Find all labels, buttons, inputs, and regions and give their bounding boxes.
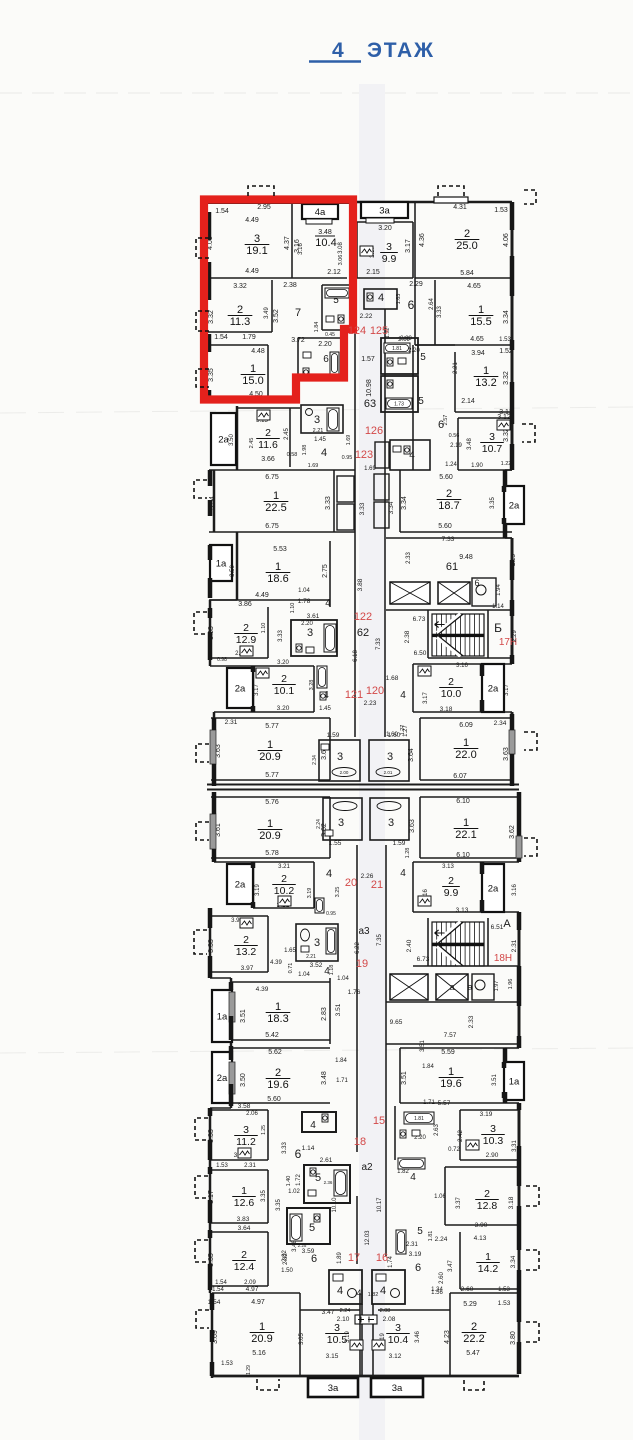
svg-text:1.53: 1.53 bbox=[221, 1361, 233, 1367]
svg-text:А: А bbox=[503, 918, 511, 930]
svg-text:1.71: 1.71 bbox=[336, 1078, 348, 1084]
svg-text:7.33: 7.33 bbox=[376, 638, 382, 650]
svg-text:3.19: 3.19 bbox=[480, 1111, 493, 1118]
svg-text:126: 126 bbox=[365, 425, 383, 437]
svg-text:2: 2 bbox=[281, 873, 287, 885]
svg-text:6.75: 6.75 bbox=[265, 523, 279, 530]
svg-text:2: 2 bbox=[484, 1188, 490, 1200]
svg-text:3.06: 3.06 bbox=[338, 255, 344, 266]
svg-text:1a: 1a bbox=[217, 1012, 228, 1023]
svg-text:1.29: 1.29 bbox=[246, 1365, 252, 1375]
svg-text:1.06: 1.06 bbox=[434, 1194, 446, 1200]
svg-text:18.6: 18.6 bbox=[267, 573, 288, 585]
svg-text:1: 1 bbox=[485, 1251, 491, 1263]
svg-text:3a: 3a bbox=[392, 1383, 403, 1394]
svg-text:1.02: 1.02 bbox=[288, 1189, 300, 1195]
svg-text:3.16: 3.16 bbox=[298, 243, 304, 255]
svg-text:3.48: 3.48 bbox=[321, 1071, 328, 1085]
svg-text:20.9: 20.9 bbox=[259, 830, 280, 842]
svg-text:0.72: 0.72 bbox=[448, 1147, 460, 1153]
svg-text:3.16: 3.16 bbox=[456, 663, 468, 669]
svg-text:9.9: 9.9 bbox=[382, 253, 397, 265]
svg-text:3.34: 3.34 bbox=[401, 496, 408, 510]
svg-text:6: 6 bbox=[323, 354, 329, 365]
svg-text:1.59: 1.59 bbox=[393, 840, 406, 847]
svg-text:3.05: 3.05 bbox=[299, 1333, 305, 1345]
svg-text:6: 6 bbox=[415, 1262, 421, 1274]
svg-text:3: 3 bbox=[489, 431, 495, 443]
svg-text:1.74: 1.74 bbox=[388, 1256, 394, 1268]
svg-text:16: 16 bbox=[376, 1252, 388, 1264]
svg-text:10.4: 10.4 bbox=[315, 237, 336, 249]
svg-text:3.35: 3.35 bbox=[276, 1199, 282, 1211]
svg-text:3: 3 bbox=[307, 627, 313, 639]
svg-text:2.20: 2.20 bbox=[301, 621, 313, 627]
svg-text:1.81: 1.81 bbox=[392, 346, 402, 352]
svg-text:1: 1 bbox=[463, 817, 469, 829]
svg-text:3.88: 3.88 bbox=[357, 578, 364, 591]
svg-text:2: 2 bbox=[471, 1321, 477, 1333]
svg-text:1.94: 1.94 bbox=[496, 584, 502, 596]
svg-text:3.20: 3.20 bbox=[277, 705, 290, 712]
svg-text:21: 21 bbox=[371, 879, 383, 891]
svg-text:3a: 3a bbox=[328, 1383, 339, 1394]
svg-text:3.18: 3.18 bbox=[440, 706, 453, 713]
svg-text:3.13: 3.13 bbox=[456, 907, 469, 914]
svg-text:18.3: 18.3 bbox=[267, 1013, 288, 1025]
svg-text:3.17: 3.17 bbox=[405, 239, 412, 253]
svg-text:20.9: 20.9 bbox=[251, 1333, 272, 1345]
svg-text:6.10: 6.10 bbox=[456, 852, 470, 859]
svg-text:125: 125 bbox=[370, 325, 388, 337]
svg-text:ЭТАЖ: ЭТАЖ bbox=[367, 39, 435, 62]
svg-text:1.10: 1.10 bbox=[290, 603, 296, 614]
svg-text:1.45: 1.45 bbox=[319, 706, 331, 712]
svg-text:2.24: 2.24 bbox=[340, 1308, 351, 1314]
svg-text:3: 3 bbox=[387, 751, 393, 763]
svg-text:2: 2 bbox=[243, 622, 249, 634]
svg-text:2: 2 bbox=[237, 304, 243, 316]
svg-text:а: а bbox=[449, 982, 454, 992]
svg-text:62: 62 bbox=[357, 627, 369, 639]
svg-text:3.28: 3.28 bbox=[309, 680, 315, 691]
svg-text:9.48: 9.48 bbox=[459, 554, 473, 561]
svg-text:2.01: 2.01 bbox=[384, 770, 393, 775]
svg-text:3.51: 3.51 bbox=[240, 1009, 247, 1023]
svg-text:15: 15 bbox=[373, 1115, 385, 1127]
svg-text:5: 5 bbox=[309, 1222, 315, 1234]
svg-text:5.78: 5.78 bbox=[265, 850, 279, 857]
svg-text:1.90: 1.90 bbox=[471, 463, 483, 469]
svg-text:1.14: 1.14 bbox=[302, 1145, 315, 1152]
svg-text:2.60: 2.60 bbox=[439, 1272, 445, 1284]
svg-text:1: 1 bbox=[241, 1185, 247, 1197]
svg-text:1.28: 1.28 bbox=[405, 848, 411, 859]
svg-text:1.82: 1.82 bbox=[368, 1292, 379, 1298]
svg-text:5.62: 5.62 bbox=[268, 1049, 282, 1056]
svg-text:11.3: 11.3 bbox=[230, 316, 251, 328]
svg-text:0.58: 0.58 bbox=[287, 452, 298, 458]
svg-text:2: 2 bbox=[281, 673, 287, 685]
svg-text:6: 6 bbox=[295, 1147, 302, 1161]
svg-text:3.50: 3.50 bbox=[240, 1073, 247, 1087]
svg-text:1: 1 bbox=[463, 737, 469, 749]
svg-text:3.64: 3.64 bbox=[238, 1225, 251, 1232]
svg-text:6.10: 6.10 bbox=[456, 798, 470, 805]
svg-text:4: 4 bbox=[410, 1172, 416, 1183]
svg-text:2.29: 2.29 bbox=[512, 630, 518, 642]
svg-text:4.97: 4.97 bbox=[251, 1299, 265, 1306]
svg-text:4a: 4a bbox=[315, 207, 326, 218]
svg-text:5.84: 5.84 bbox=[460, 270, 474, 277]
svg-text:4.31: 4.31 bbox=[453, 204, 467, 211]
svg-text:3.86: 3.86 bbox=[238, 601, 252, 608]
svg-text:5.76: 5.76 bbox=[265, 799, 279, 806]
svg-text:4: 4 bbox=[356, 1288, 361, 1298]
svg-text:4: 4 bbox=[321, 447, 327, 459]
svg-text:2.22: 2.22 bbox=[360, 313, 373, 320]
svg-text:61: 61 bbox=[446, 561, 458, 573]
svg-text:1.04: 1.04 bbox=[298, 972, 310, 978]
svg-text:2.31: 2.31 bbox=[511, 939, 518, 952]
svg-text:3.52: 3.52 bbox=[310, 962, 323, 969]
svg-text:3.16: 3.16 bbox=[512, 884, 518, 896]
svg-text:3.34: 3.34 bbox=[388, 501, 395, 514]
svg-text:121: 121 bbox=[345, 689, 363, 701]
svg-text:2.40: 2.40 bbox=[406, 939, 413, 952]
svg-text:5: 5 bbox=[418, 396, 424, 407]
svg-text:2a: 2a bbox=[488, 884, 499, 895]
svg-text:3.34: 3.34 bbox=[503, 310, 510, 324]
svg-text:3.64: 3.64 bbox=[408, 748, 415, 762]
svg-text:4: 4 bbox=[378, 292, 384, 304]
svg-text:4.97: 4.97 bbox=[246, 1286, 259, 1293]
svg-text:4.06: 4.06 bbox=[503, 233, 510, 247]
svg-text:2.23: 2.23 bbox=[364, 700, 377, 707]
svg-text:9.9: 9.9 bbox=[444, 887, 459, 899]
svg-text:1.89: 1.89 bbox=[337, 1252, 343, 1264]
svg-text:5.29: 5.29 bbox=[463, 1301, 477, 1308]
svg-text:4.39: 4.39 bbox=[256, 986, 269, 993]
svg-text:6.51: 6.51 bbox=[491, 924, 504, 931]
svg-text:12.4: 12.4 bbox=[234, 1261, 255, 1273]
svg-text:10.10: 10.10 bbox=[332, 1197, 338, 1213]
svg-text:2a: 2a bbox=[509, 501, 520, 512]
svg-text:3.50: 3.50 bbox=[229, 434, 235, 446]
svg-text:3.35: 3.35 bbox=[261, 1190, 267, 1202]
svg-text:3.32: 3.32 bbox=[233, 283, 247, 290]
svg-text:3.52: 3.52 bbox=[273, 309, 280, 323]
svg-text:19.1: 19.1 bbox=[246, 245, 267, 257]
svg-text:3.46: 3.46 bbox=[415, 1331, 421, 1343]
svg-text:1.71: 1.71 bbox=[423, 1100, 435, 1106]
svg-text:20: 20 bbox=[345, 877, 357, 889]
svg-text:1.72: 1.72 bbox=[296, 1174, 302, 1186]
svg-text:10.0: 10.0 bbox=[441, 688, 462, 700]
svg-text:3.50: 3.50 bbox=[230, 565, 236, 577]
svg-text:1.45: 1.45 bbox=[314, 437, 326, 443]
svg-text:4: 4 bbox=[332, 39, 344, 62]
svg-text:2: 2 bbox=[446, 488, 452, 500]
svg-text:123: 123 bbox=[355, 449, 373, 461]
svg-text:1.40: 1.40 bbox=[286, 1176, 292, 1187]
svg-text:4.49: 4.49 bbox=[245, 268, 259, 275]
svg-text:7: 7 bbox=[295, 307, 301, 319]
svg-text:1.24: 1.24 bbox=[445, 462, 457, 468]
svg-text:1.56: 1.56 bbox=[431, 1290, 443, 1296]
svg-text:2: 2 bbox=[243, 934, 249, 946]
svg-text:1a: 1a bbox=[509, 1077, 520, 1088]
svg-text:1.54: 1.54 bbox=[215, 1280, 227, 1286]
svg-text:2a: 2a bbox=[235, 880, 246, 891]
svg-text:3.58: 3.58 bbox=[238, 1103, 251, 1110]
svg-text:1.14: 1.14 bbox=[492, 604, 504, 610]
svg-text:4.48: 4.48 bbox=[251, 348, 265, 355]
svg-text:2.33: 2.33 bbox=[406, 552, 412, 564]
svg-text:3.63: 3.63 bbox=[409, 819, 416, 833]
svg-text:5.77: 5.77 bbox=[265, 723, 279, 730]
svg-text:4.65: 4.65 bbox=[467, 283, 481, 290]
svg-text:5: 5 bbox=[420, 352, 426, 363]
svg-text:2.95: 2.95 bbox=[257, 204, 271, 211]
svg-text:0.45: 0.45 bbox=[325, 332, 335, 338]
svg-text:3.19: 3.19 bbox=[307, 888, 313, 899]
svg-text:2.90: 2.90 bbox=[486, 1152, 499, 1159]
svg-text:13.2: 13.2 bbox=[475, 377, 496, 389]
svg-text:5.77: 5.77 bbox=[265, 772, 279, 779]
svg-text:3.51: 3.51 bbox=[335, 1003, 342, 1016]
svg-text:1: 1 bbox=[275, 1001, 281, 1013]
svg-text:5.59: 5.59 bbox=[441, 1049, 455, 1056]
svg-text:12.9: 12.9 bbox=[236, 634, 257, 646]
svg-text:4.36: 4.36 bbox=[419, 233, 426, 247]
svg-text:2.08: 2.08 bbox=[380, 1308, 391, 1314]
svg-text:2a: 2a bbox=[235, 684, 246, 695]
svg-text:2.42: 2.42 bbox=[458, 1130, 464, 1142]
svg-text:3.33: 3.33 bbox=[278, 630, 284, 642]
svg-text:3.33: 3.33 bbox=[282, 1142, 288, 1154]
svg-text:4: 4 bbox=[400, 868, 406, 879]
svg-text:3.83: 3.83 bbox=[237, 1216, 250, 1223]
svg-text:2.38: 2.38 bbox=[283, 282, 297, 289]
svg-text:2: 2 bbox=[448, 676, 454, 688]
svg-text:3.15: 3.15 bbox=[326, 1353, 339, 1360]
svg-text:1.84: 1.84 bbox=[422, 1064, 434, 1070]
svg-text:2.31: 2.31 bbox=[225, 719, 238, 726]
svg-text:1.98: 1.98 bbox=[302, 445, 308, 456]
svg-text:2: 2 bbox=[265, 427, 271, 439]
svg-text:1.10: 1.10 bbox=[261, 623, 267, 634]
svg-text:4.65: 4.65 bbox=[470, 336, 484, 343]
svg-text:3.33: 3.33 bbox=[437, 306, 443, 318]
svg-text:1.97: 1.97 bbox=[494, 981, 500, 992]
svg-text:10.98: 10.98 bbox=[366, 379, 373, 397]
svg-text:2.64: 2.64 bbox=[429, 298, 435, 310]
svg-text:2.14: 2.14 bbox=[461, 398, 475, 405]
svg-text:1.18: 1.18 bbox=[329, 965, 335, 976]
svg-text:3: 3 bbox=[490, 1123, 496, 1135]
svg-text:3.48: 3.48 bbox=[292, 1240, 298, 1252]
svg-text:1.81: 1.81 bbox=[414, 1116, 424, 1122]
svg-text:1.79: 1.79 bbox=[242, 334, 256, 341]
svg-text:1: 1 bbox=[478, 304, 484, 316]
svg-text:4: 4 bbox=[310, 1120, 316, 1131]
svg-text:6: 6 bbox=[311, 1253, 317, 1265]
svg-text:1.04: 1.04 bbox=[298, 588, 310, 594]
svg-text:6.73: 6.73 bbox=[417, 956, 430, 963]
svg-text:1.53: 1.53 bbox=[216, 1163, 228, 1169]
svg-text:7.35: 7.35 bbox=[377, 934, 383, 946]
svg-text:19.6: 19.6 bbox=[440, 1078, 461, 1090]
svg-text:2.29: 2.29 bbox=[409, 281, 423, 288]
svg-text:7.57: 7.57 bbox=[444, 1032, 457, 1039]
svg-text:3.62: 3.62 bbox=[509, 825, 516, 839]
svg-text:3.80: 3.80 bbox=[510, 1331, 517, 1345]
svg-text:6: 6 bbox=[474, 578, 479, 588]
svg-text:1.53: 1.53 bbox=[498, 1287, 510, 1293]
svg-text:1.53: 1.53 bbox=[498, 1300, 511, 1307]
svg-text:3.13: 3.13 bbox=[442, 864, 454, 870]
svg-text:3.66: 3.66 bbox=[261, 456, 275, 463]
svg-text:3: 3 bbox=[395, 1322, 401, 1334]
svg-text:6: 6 bbox=[408, 298, 415, 312]
svg-text:2.75: 2.75 bbox=[322, 564, 329, 578]
svg-text:2: 2 bbox=[448, 875, 454, 887]
svg-text:4.49: 4.49 bbox=[255, 592, 269, 599]
svg-text:6.50: 6.50 bbox=[414, 650, 427, 657]
svg-text:2.31: 2.31 bbox=[406, 1242, 418, 1248]
svg-text:3.49: 3.49 bbox=[264, 307, 270, 319]
svg-text:19.6: 19.6 bbox=[267, 1079, 288, 1091]
svg-text:1.82: 1.82 bbox=[397, 1169, 409, 1175]
svg-text:3.33: 3.33 bbox=[359, 502, 366, 515]
svg-text:1.69: 1.69 bbox=[346, 435, 352, 446]
svg-text:3.97: 3.97 bbox=[241, 965, 254, 972]
svg-text:2.06: 2.06 bbox=[246, 1111, 258, 1117]
svg-text:3.32: 3.32 bbox=[208, 310, 215, 324]
svg-text:122: 122 bbox=[354, 611, 372, 623]
svg-text:3.20: 3.20 bbox=[277, 660, 289, 666]
svg-text:10.4: 10.4 bbox=[388, 1334, 409, 1346]
svg-text:12.03: 12.03 bbox=[365, 1230, 371, 1246]
svg-text:3.20: 3.20 bbox=[378, 225, 392, 232]
svg-text:4: 4 bbox=[400, 690, 406, 701]
svg-text:12.6: 12.6 bbox=[234, 1197, 255, 1209]
svg-text:3.35: 3.35 bbox=[208, 368, 215, 382]
svg-text:120: 120 bbox=[366, 685, 384, 697]
svg-text:1.04: 1.04 bbox=[337, 976, 349, 982]
svg-text:3.19: 3.19 bbox=[409, 1251, 422, 1258]
svg-text:3: 3 bbox=[254, 233, 260, 245]
svg-text:3: 3 bbox=[314, 937, 320, 949]
svg-text:2: 2 bbox=[275, 1067, 281, 1079]
svg-text:1.54: 1.54 bbox=[212, 1287, 224, 1293]
svg-text:10.7: 10.7 bbox=[482, 443, 503, 455]
svg-text:18: 18 bbox=[354, 1136, 366, 1148]
svg-text:1.59: 1.59 bbox=[327, 732, 340, 739]
svg-text:а: а bbox=[467, 982, 472, 992]
svg-text:3.51: 3.51 bbox=[420, 1040, 426, 1052]
svg-text:3: 3 bbox=[386, 241, 392, 253]
svg-text:2.34: 2.34 bbox=[312, 755, 318, 765]
svg-text:1.63: 1.63 bbox=[396, 294, 402, 305]
svg-text:5.16: 5.16 bbox=[252, 1350, 266, 1357]
svg-text:4.13: 4.13 bbox=[474, 1235, 487, 1242]
svg-text:2.82: 2.82 bbox=[282, 1250, 288, 1262]
svg-text:5: 5 bbox=[417, 1226, 423, 1237]
svg-text:6.22: 6.22 bbox=[355, 942, 361, 954]
svg-text:3.33: 3.33 bbox=[325, 496, 332, 510]
svg-text:18.7: 18.7 bbox=[438, 500, 459, 512]
svg-text:4.23: 4.23 bbox=[444, 1330, 451, 1344]
svg-text:2.38: 2.38 bbox=[404, 630, 411, 643]
svg-text:1.55: 1.55 bbox=[329, 840, 342, 847]
svg-text:3.48: 3.48 bbox=[467, 438, 473, 450]
svg-text:3.90: 3.90 bbox=[475, 1222, 488, 1229]
svg-text:2.21: 2.21 bbox=[453, 362, 459, 374]
svg-text:1.27: 1.27 bbox=[400, 725, 406, 736]
svg-text:4.49: 4.49 bbox=[245, 217, 259, 224]
svg-text:1: 1 bbox=[448, 1066, 454, 1078]
svg-text:1.81: 1.81 bbox=[428, 1231, 434, 1242]
svg-text:22.5: 22.5 bbox=[265, 502, 286, 514]
svg-text:1: 1 bbox=[275, 561, 281, 573]
svg-text:3: 3 bbox=[388, 817, 394, 829]
svg-text:63: 63 bbox=[364, 398, 376, 410]
svg-text:25.0: 25.0 bbox=[456, 240, 477, 252]
svg-text:20.9: 20.9 bbox=[259, 751, 280, 763]
svg-text:2: 2 bbox=[464, 228, 470, 240]
svg-text:3: 3 bbox=[334, 1322, 340, 1334]
svg-text:3.08: 3.08 bbox=[338, 242, 344, 254]
svg-text:1: 1 bbox=[273, 490, 279, 502]
svg-text:3.35: 3.35 bbox=[490, 497, 496, 509]
svg-text:2a: 2a bbox=[488, 684, 499, 695]
svg-text:5.60: 5.60 bbox=[439, 474, 453, 481]
svg-text:1.84: 1.84 bbox=[335, 1058, 347, 1064]
svg-text:1.54: 1.54 bbox=[215, 208, 229, 215]
svg-text:5.47: 5.47 bbox=[466, 1350, 480, 1357]
svg-text:1.54: 1.54 bbox=[214, 334, 228, 341]
svg-text:5.53: 5.53 bbox=[273, 546, 287, 553]
svg-text:19: 19 bbox=[356, 958, 368, 970]
svg-text:3.34: 3.34 bbox=[510, 1255, 517, 1268]
svg-text:2.08: 2.08 bbox=[383, 1316, 396, 1323]
svg-text:18Н: 18Н bbox=[494, 953, 512, 964]
svg-text:3.19: 3.19 bbox=[255, 884, 261, 896]
svg-text:10.2: 10.2 bbox=[274, 885, 295, 897]
svg-text:3.47: 3.47 bbox=[322, 1309, 335, 1316]
svg-text:6.09: 6.09 bbox=[459, 722, 473, 729]
svg-text:10.17: 10.17 bbox=[377, 1197, 383, 1213]
svg-text:1.25: 1.25 bbox=[261, 1125, 267, 1135]
svg-text:2.24: 2.24 bbox=[316, 819, 322, 829]
svg-text:2.45: 2.45 bbox=[284, 428, 290, 440]
svg-text:15.5: 15.5 bbox=[470, 316, 491, 328]
svg-text:2.34: 2.34 bbox=[494, 720, 507, 727]
svg-text:1.68: 1.68 bbox=[386, 675, 399, 682]
svg-text:1.76: 1.76 bbox=[348, 989, 361, 996]
svg-text:1.50: 1.50 bbox=[281, 1268, 293, 1274]
svg-text:а3: а3 bbox=[358, 926, 370, 937]
svg-text:2.61: 2.61 bbox=[320, 1157, 333, 1164]
svg-text:1.84: 1.84 bbox=[314, 322, 320, 333]
svg-text:2.60: 2.60 bbox=[461, 1286, 474, 1293]
svg-text:3.17: 3.17 bbox=[254, 684, 260, 696]
svg-text:Б: Б bbox=[494, 621, 502, 635]
svg-text:12.8: 12.8 bbox=[477, 1200, 498, 1212]
svg-text:22.1: 22.1 bbox=[455, 829, 476, 841]
